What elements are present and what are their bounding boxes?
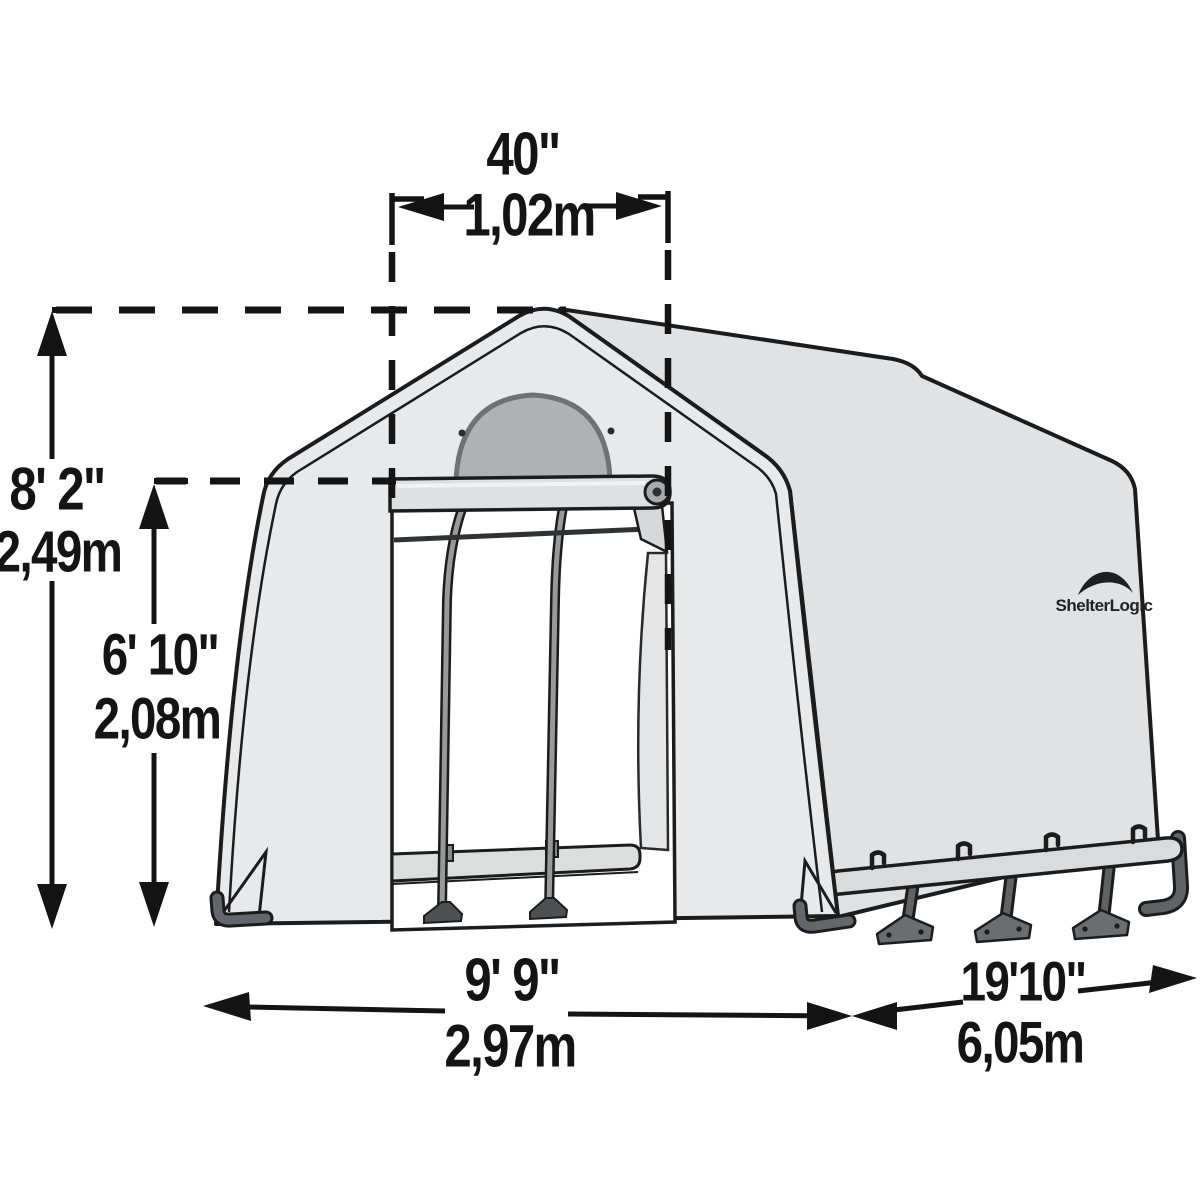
door-height-imperial-label: 6' 10" (102, 627, 219, 682)
side-length-metric-label: 6,05m (957, 1015, 1084, 1070)
door-width-metric-label: 1,02m (463, 187, 594, 244)
arrow-left (203, 992, 251, 1021)
front-width-imperial-label: 9' 9" (464, 952, 559, 1009)
arrow-up (37, 311, 67, 356)
arrow-right (807, 1002, 852, 1030)
arrow-right (1149, 965, 1197, 993)
front-width-metric-label: 2,97m (444, 1018, 575, 1075)
door-width-imperial-label: 40" (486, 126, 559, 183)
bolt-dot (608, 428, 615, 435)
arrow-up (139, 484, 169, 529)
arrow-down (139, 882, 169, 927)
peak-height-imperial-label: 8' 2" (9, 461, 104, 518)
door-height-metric-label: 2,08m (94, 691, 221, 746)
brand-logo-text: ShelterLogic (1056, 596, 1153, 615)
side-length-imperial-label: 19'10" (960, 954, 1085, 1007)
bolt-dot (459, 430, 466, 437)
arrow-left (852, 1002, 897, 1030)
arrow-down (37, 884, 67, 929)
peak-height-metric-label: 2,49m (0, 524, 121, 579)
shelter-dimension-diagram: ShelterLogic (0, 0, 1200, 1200)
